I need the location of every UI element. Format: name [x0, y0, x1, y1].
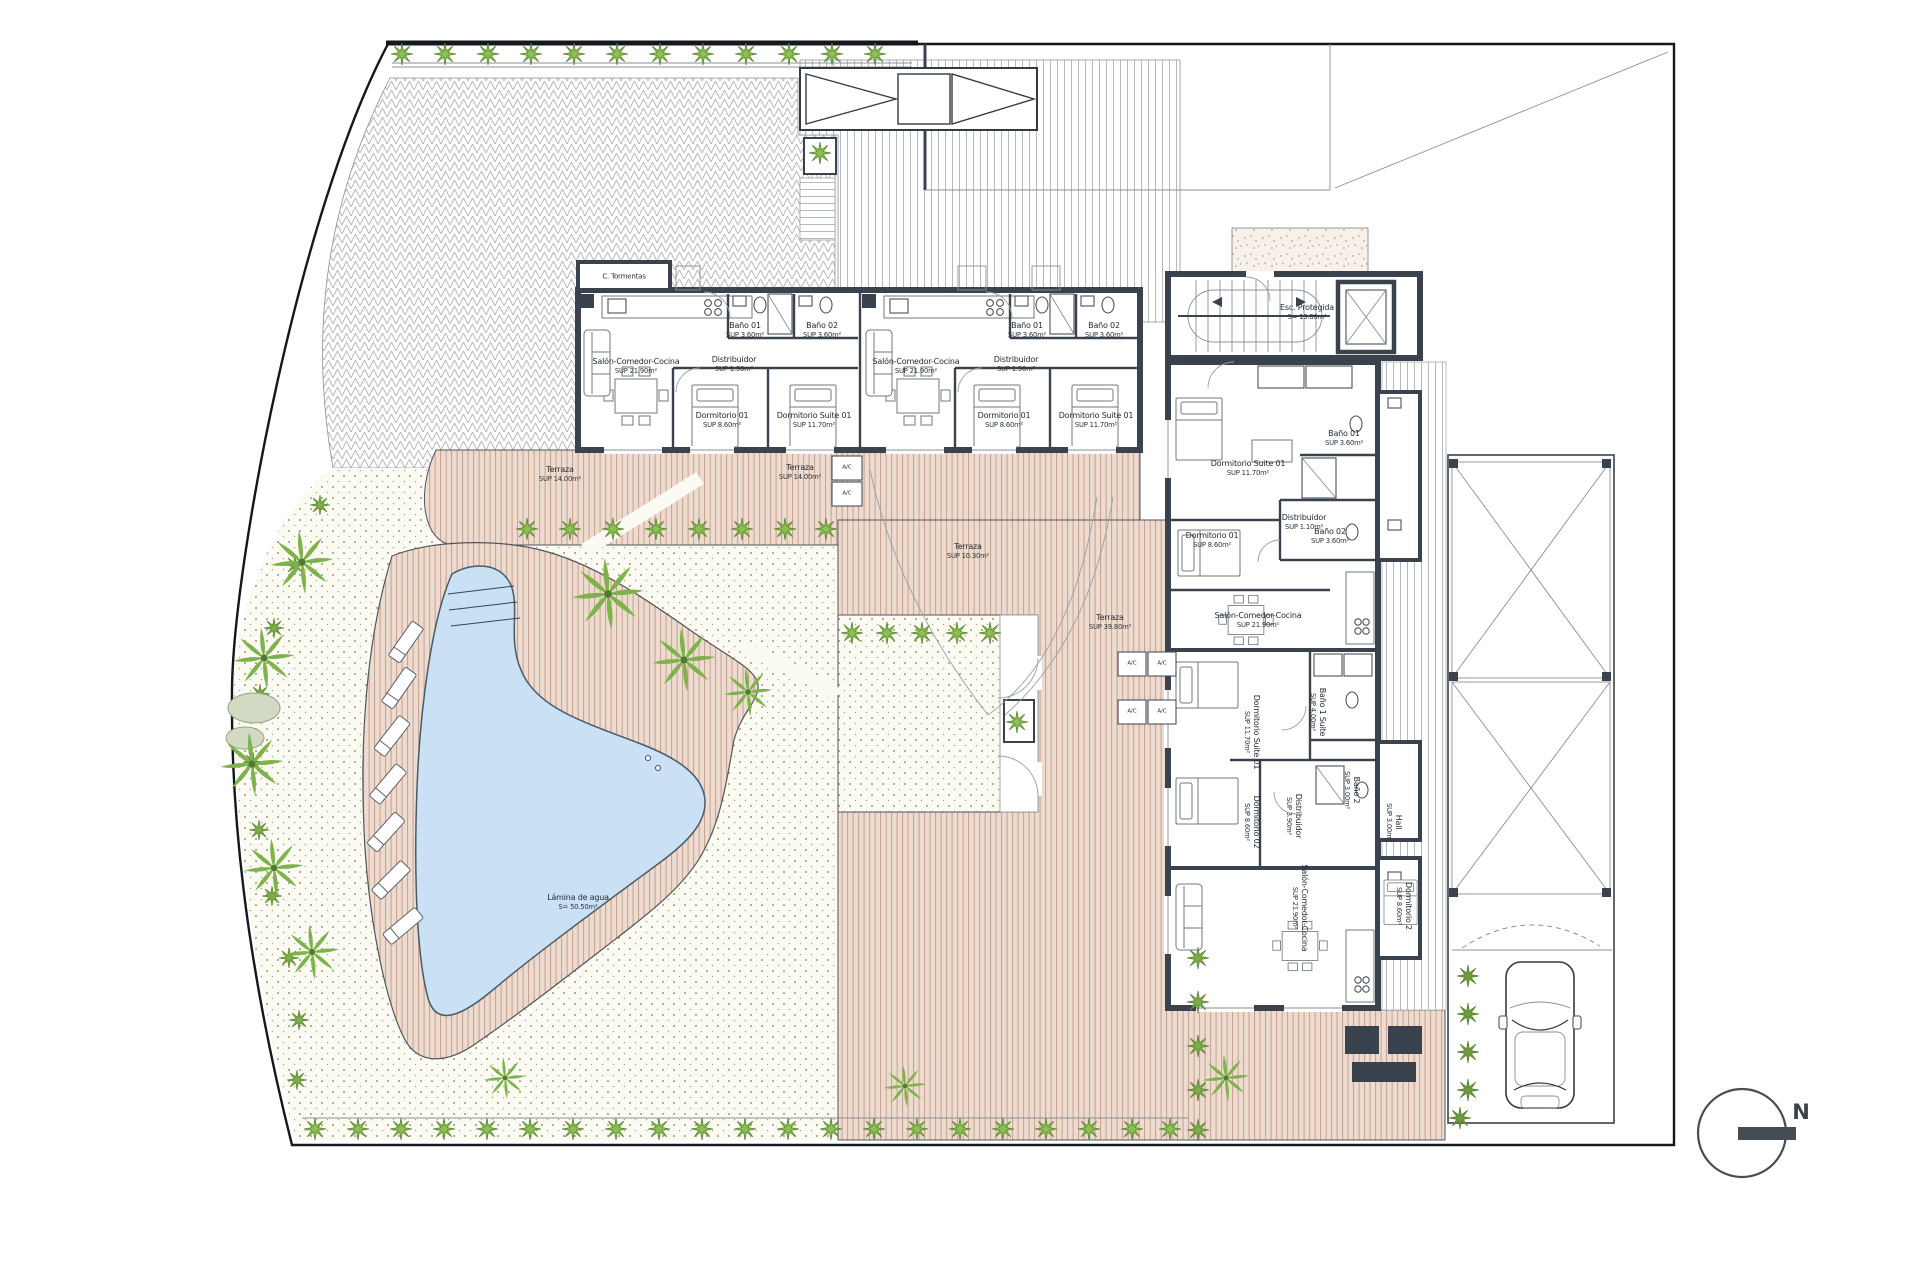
label-unitD-hall: HallSUP 3.00m²: [1385, 803, 1403, 841]
label-unitE-dorm2: Dormitorio 2SUP 8.60m²: [1395, 882, 1413, 930]
label-unitA-bano1: Baño 01SUP 3.60m²: [726, 321, 764, 339]
label-storm-closet: C. Tormentas: [602, 273, 645, 282]
label-ac-3: A/C: [1127, 661, 1136, 668]
label-unitC-bano2: Baño 02SUP 3.60m²: [1311, 527, 1349, 545]
label-unitC-bano1: Baño 01SUP 3.60m²: [1325, 429, 1363, 447]
label-unitB-suite: Dormitorio Suite 01SUP 11.70m²: [1059, 411, 1134, 429]
label-unitA-suite: Dormitorio Suite 01SUP 11.70m²: [777, 411, 852, 429]
label-unitB-distribuidor: DistribuidorSUP 1.90m²: [994, 355, 1038, 373]
label-unitB-salon: Salón-Comedor-CocinaSUP 21.90m²: [873, 357, 960, 375]
parking-court: [1448, 455, 1614, 1123]
label-unitC-salon: Salón-Comedor-CocinaSUP 21.90m²: [1215, 611, 1302, 629]
label-terraza-2: TerrazaSUP 14.00m²: [779, 463, 821, 481]
elevator: [1338, 282, 1394, 352]
car: [1499, 962, 1581, 1108]
label-stair: Esc. ProtegidaS= 13.80m²: [1280, 303, 1334, 321]
label-unitA-bano2: Baño 02SUP 3.60m²: [803, 321, 841, 339]
label-unitD-bano2: Baño 2SUP 3.00m²: [1343, 771, 1361, 809]
label-terraza-3: TerrazaSUP 10.30m²: [947, 542, 989, 560]
label-pool: Lámina de aguaS= 50.50m²: [547, 893, 609, 911]
label-ac-6: A/C: [1157, 709, 1166, 716]
label-ac-2: A/C: [842, 491, 851, 498]
label-unitB-bano2: Baño 02SUP 3.60m²: [1085, 321, 1123, 339]
label-unitA-dorm1: Dormitorio 01SUP 8.60m²: [696, 411, 749, 429]
label-terraza-1: TerrazaSUP 14.00m²: [539, 465, 581, 483]
compass-icon: [1698, 1089, 1796, 1177]
label-ac-5: A/C: [1127, 709, 1136, 716]
label-unitD-banosuite: Baño 1 SuiteSUP 4.00m²: [1309, 688, 1327, 737]
label-unitD-distribuidor: DistribuidorSUP 3.90m²: [1285, 794, 1303, 838]
label-unitB-dorm1: Dormitorio 01SUP 8.60m²: [978, 411, 1031, 429]
label-unitA-distribuidor: DistribuidorSUP 1.90m²: [712, 355, 756, 373]
label-terraza-4: TerrazaSUP 39.80m²: [1089, 613, 1131, 631]
label-ac-1: A/C: [842, 465, 851, 472]
label-unitB-bano1: Baño 01SUP 3.60m²: [1008, 321, 1046, 339]
label-ac-4: A/C: [1157, 661, 1166, 668]
label-unitC-suite: Dormitorio Suite 01SUP 11.70m²: [1211, 459, 1286, 477]
label-unitE-salon: Salón-Comedor-CocinaSUP 21.90m²: [1291, 865, 1309, 952]
label-unitC-dorm1: Dormitorio 01SUP 8.60m²: [1186, 531, 1239, 549]
label-unitD-suite: Dormitorio Suite 01SUP 11.70m²: [1243, 695, 1261, 770]
label-unitA-salon: Salón-Comedor-CocinaSUP 21.90m²: [593, 357, 680, 375]
site-plan-drawing: [0, 0, 1920, 1280]
label-compass-north: N: [1792, 1100, 1809, 1124]
site-plan: C. Tormentas Salón-Comedor-CocinaSUP 21.…: [0, 0, 1920, 1280]
label-unitD-dorm2: Dormitorio 02SUP 8.60m²: [1243, 796, 1261, 849]
